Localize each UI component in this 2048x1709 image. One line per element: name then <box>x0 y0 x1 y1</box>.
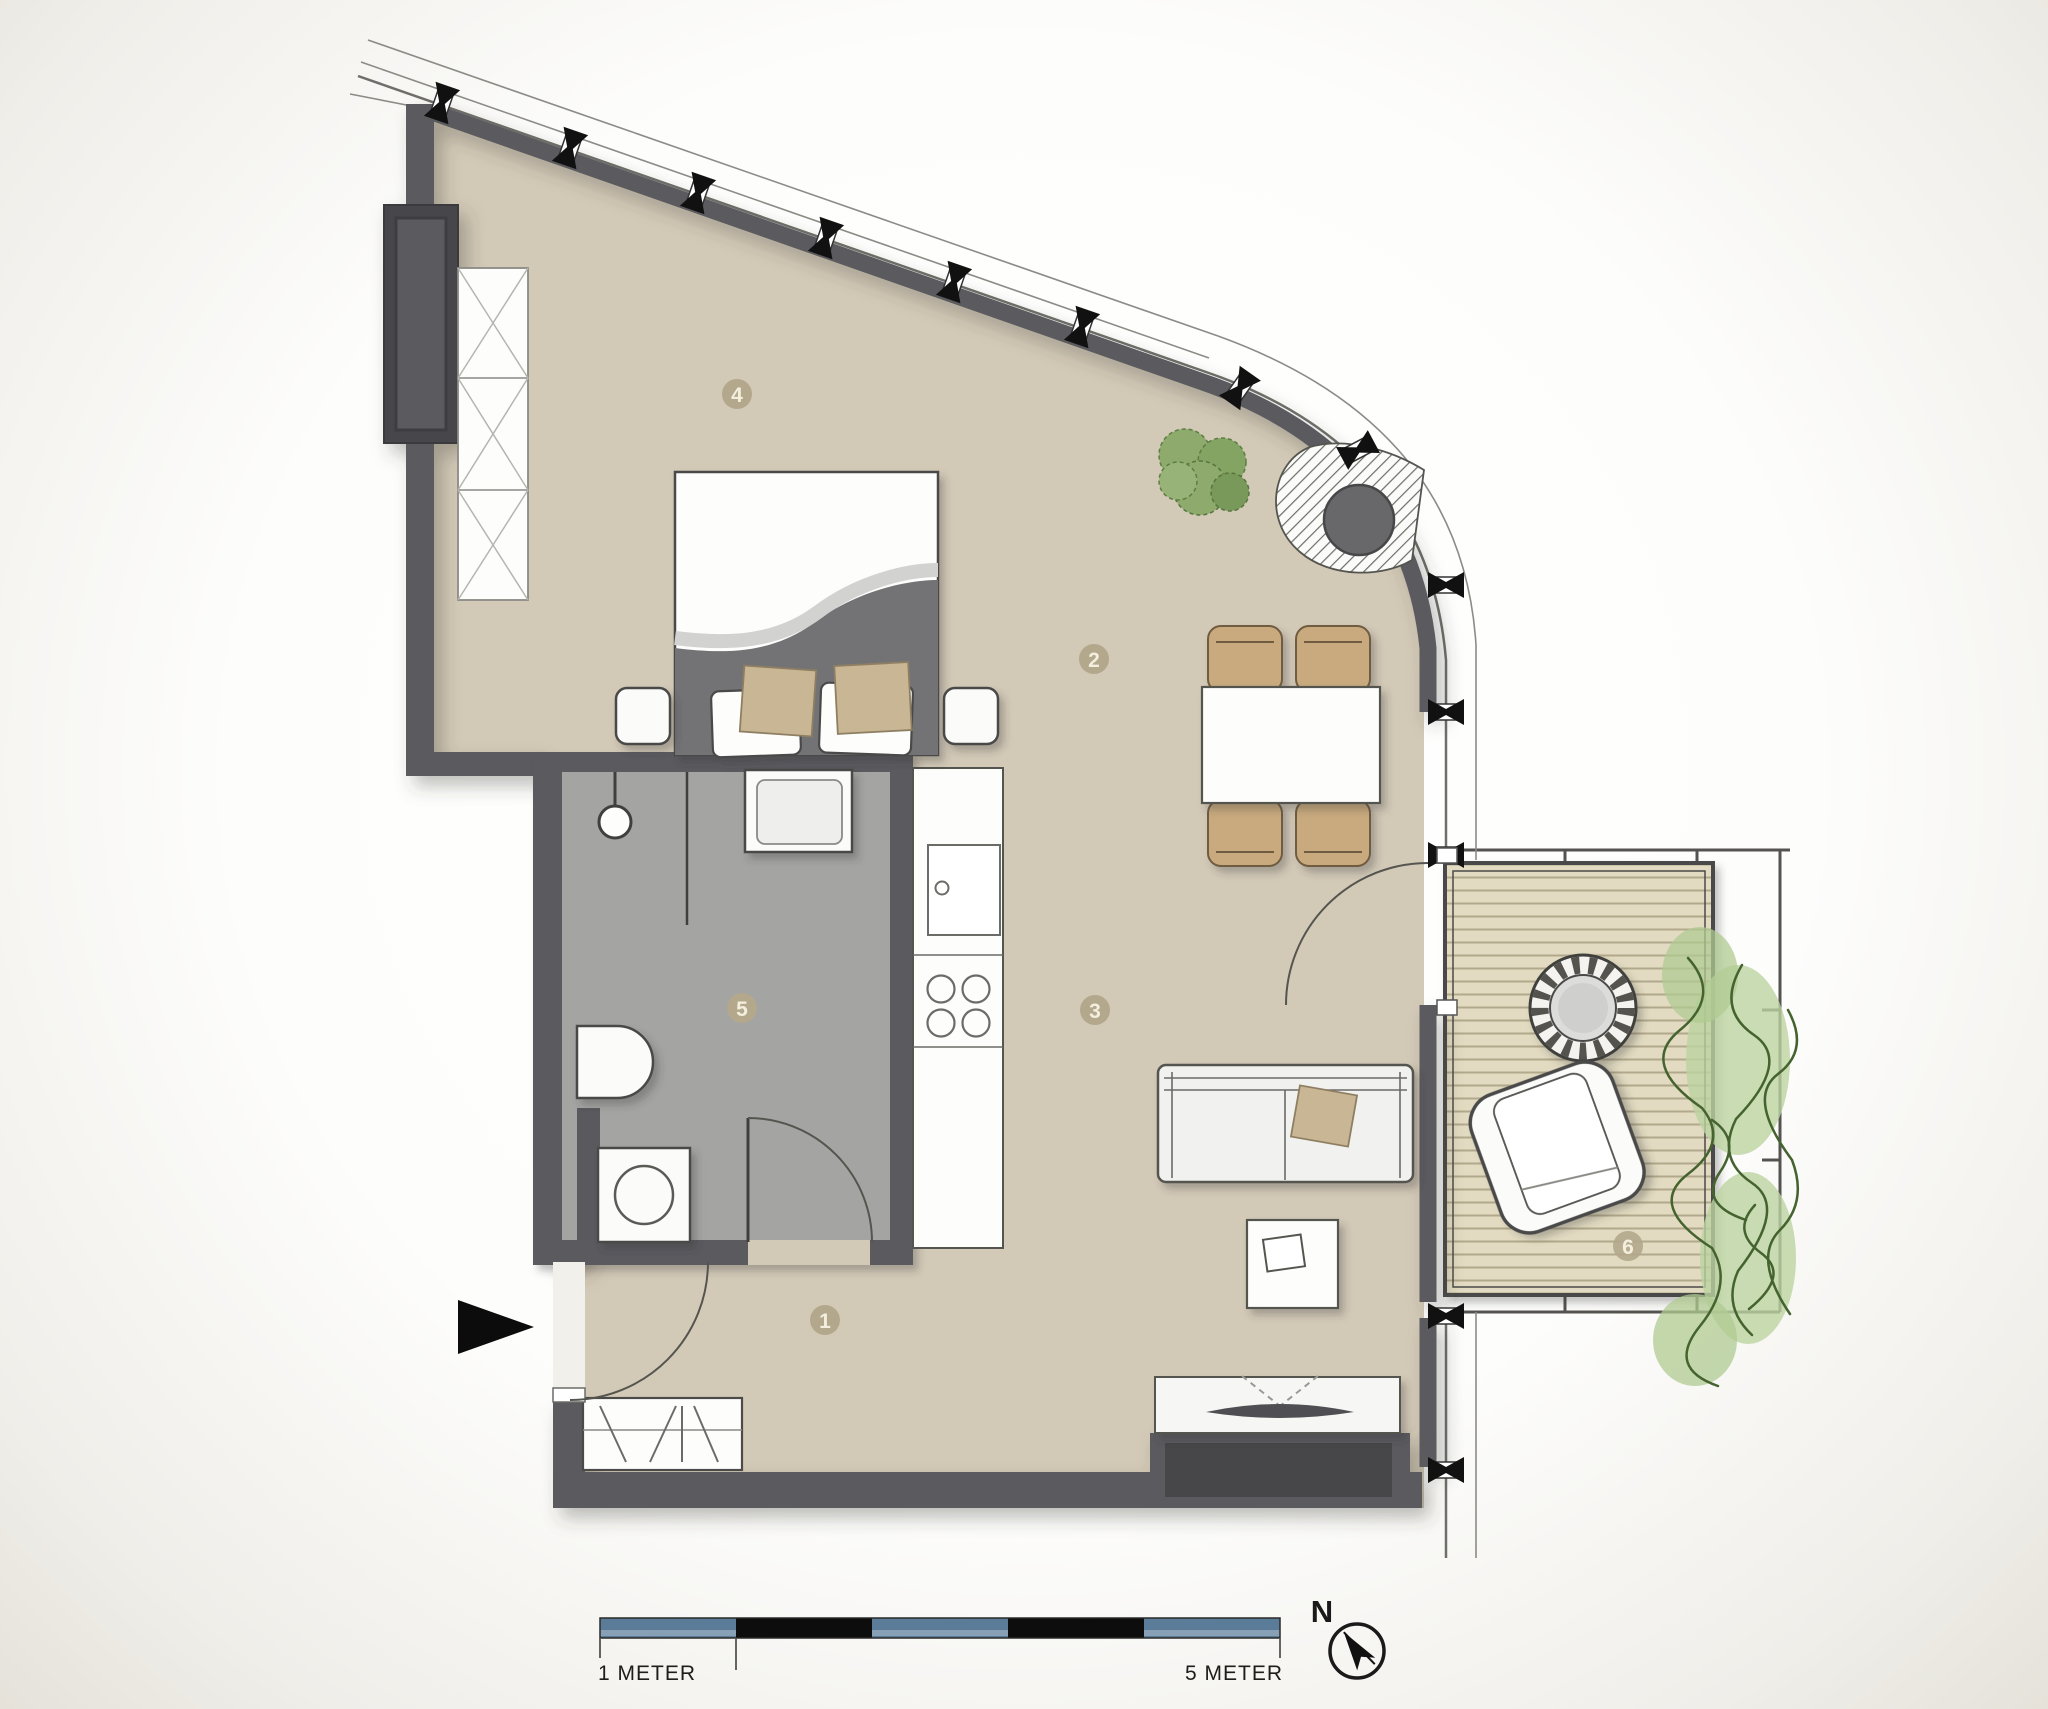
entry-wall-bottom <box>553 1402 585 1476</box>
outdoor-table <box>1530 955 1636 1061</box>
bed <box>675 472 938 758</box>
room-label-3: 3 <box>1080 995 1110 1025</box>
scale-bar: 1 METER 5 METER <box>598 1618 1283 1685</box>
washing-machine <box>598 1148 690 1242</box>
kitchen-counter <box>913 768 1003 1248</box>
tv-sideboard <box>1155 1376 1400 1433</box>
sofa-cushion <box>1291 1085 1357 1146</box>
entrance-arrow-icon <box>458 1300 534 1354</box>
room-label-5: 5 <box>727 993 757 1023</box>
scale-segment <box>736 1618 872 1638</box>
terrace <box>1445 850 1798 1386</box>
cushion <box>834 662 911 734</box>
room-label-6: 6 <box>1613 1231 1643 1261</box>
bathroom-pier <box>577 1108 600 1240</box>
room-label-2: 2 <box>1079 644 1109 674</box>
toilet <box>577 1026 653 1098</box>
bathroom-door-opening <box>748 1240 870 1265</box>
bedroom-wall-connector <box>430 752 540 776</box>
north-label: N <box>1311 1594 1333 1629</box>
north-compass: N <box>1311 1594 1384 1678</box>
washbasin <box>745 770 852 852</box>
shaft <box>384 205 458 443</box>
shower-head-icon <box>599 806 631 838</box>
nightstand <box>616 688 670 744</box>
entry-door-opening <box>553 1262 585 1390</box>
cushion <box>740 666 816 737</box>
nightstand <box>944 688 998 744</box>
sofa <box>1158 1065 1413 1182</box>
column <box>1324 485 1394 555</box>
svg-text:3: 3 <box>1089 1000 1101 1023</box>
scale-label-left: 1 METER <box>598 1662 696 1685</box>
dining-table <box>1202 687 1380 803</box>
svg-text:1: 1 <box>819 1310 831 1333</box>
floor-plan: 1 2 3 4 5 6 <box>0 0 2048 1709</box>
kitchen-sink <box>928 845 1000 935</box>
room-label-4: 4 <box>722 379 752 409</box>
room-label-1: 1 <box>810 1305 840 1335</box>
coffee-table <box>1247 1220 1338 1308</box>
svg-text:4: 4 <box>731 384 743 407</box>
media-wall <box>1150 1433 1410 1508</box>
svg-text:2: 2 <box>1088 649 1100 672</box>
kitchen <box>913 768 1003 1248</box>
svg-text:5: 5 <box>736 998 748 1021</box>
scale-label-right: 5 METER <box>1185 1662 1283 1685</box>
compass-needle-icon <box>1335 1626 1378 1675</box>
bathroom <box>533 752 913 1265</box>
wardrobe <box>458 268 528 600</box>
door-jamb <box>1437 1000 1457 1015</box>
entry-wardrobe <box>583 1398 742 1470</box>
door-jamb <box>1437 848 1457 863</box>
scale-segment <box>1008 1618 1144 1638</box>
svg-text:6: 6 <box>1622 1236 1634 1259</box>
